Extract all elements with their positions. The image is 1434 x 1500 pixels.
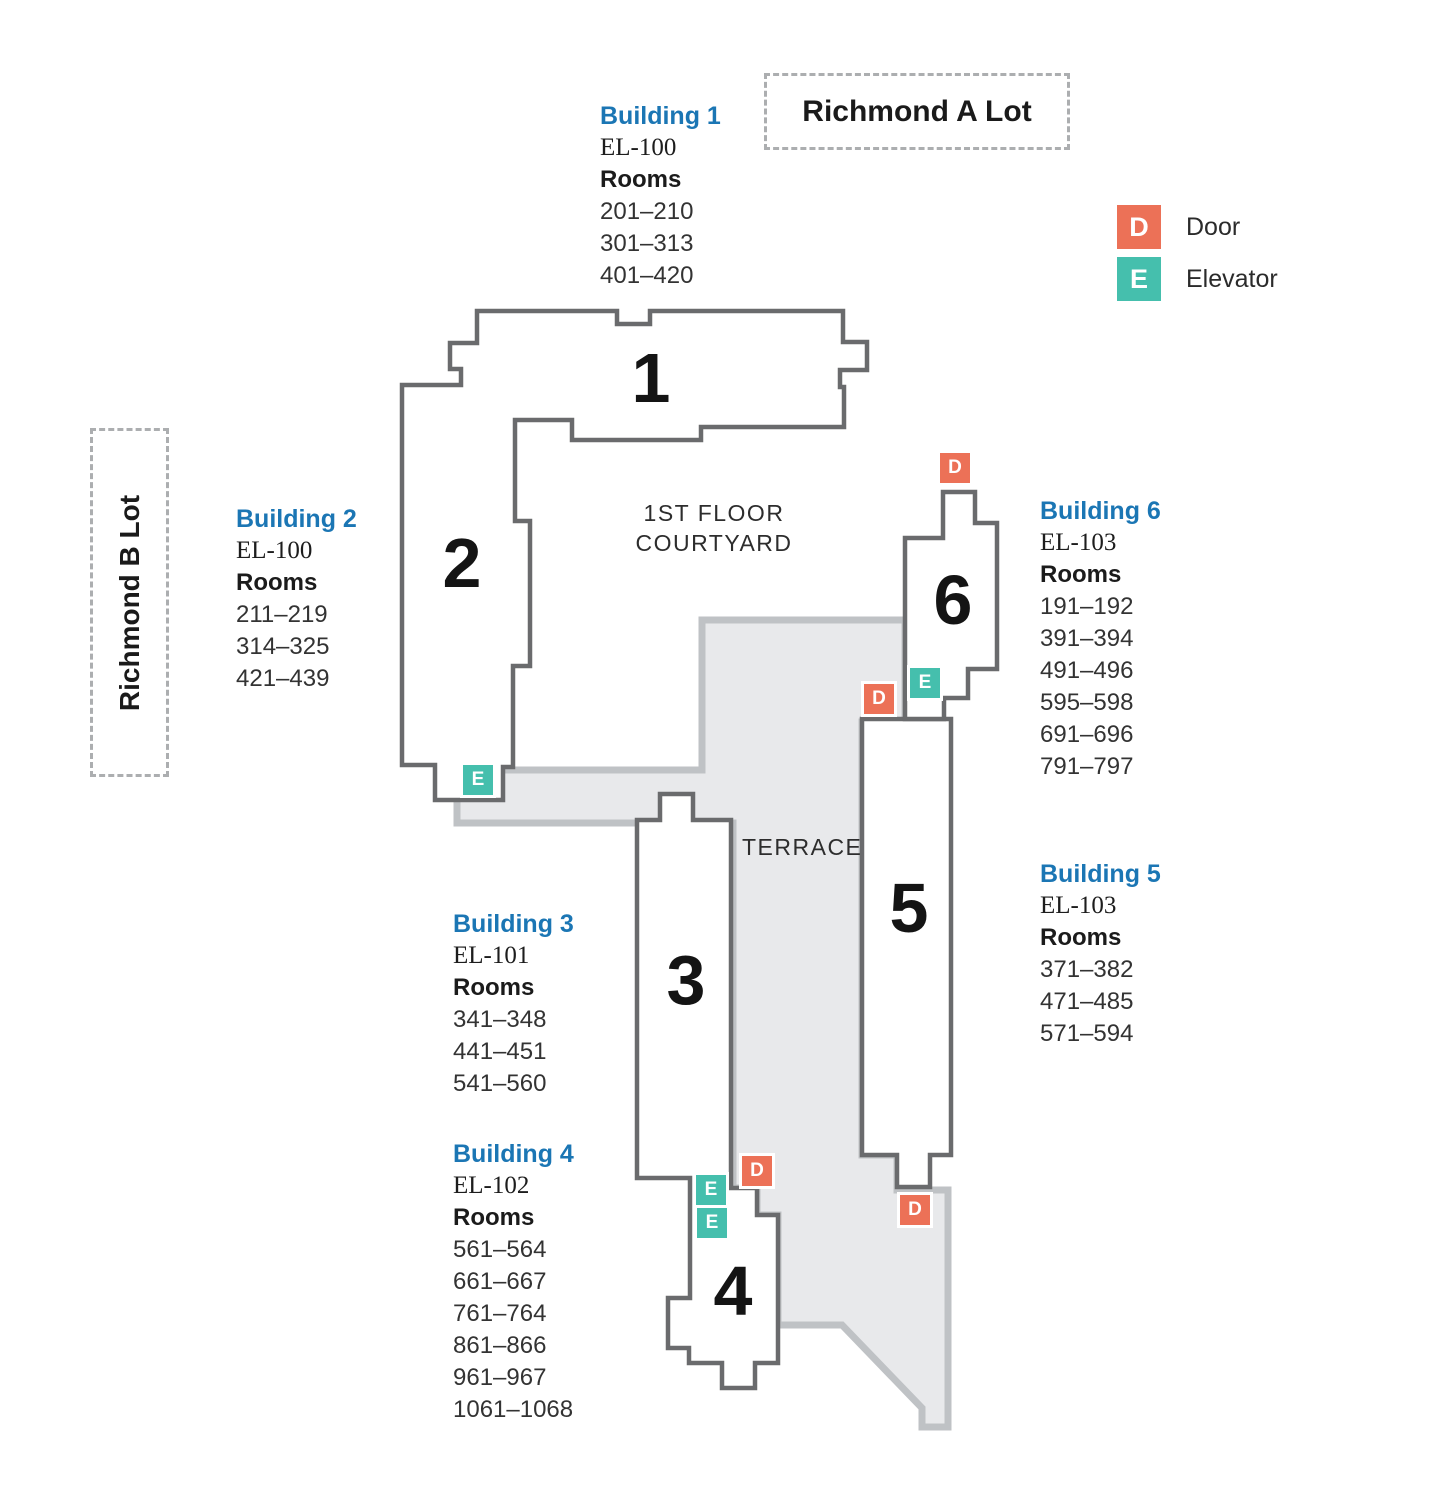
building-title: Building 4 [453,1138,574,1170]
elevator-id: EL-103 [1040,527,1161,559]
building-title: Building 2 [236,503,357,535]
elevator-marker: E [693,1172,729,1208]
elevator-id: EL-102 [453,1170,574,1202]
elevator-marker: E [907,665,943,701]
room-range: 661–667 [453,1266,574,1298]
richmond-a-lot-label: Richmond A Lot [802,95,1031,129]
door-marker: D [897,1192,933,1228]
building-5-outline [862,719,951,1187]
room-range: 371–382 [1040,954,1161,986]
building-5-number: 5 [864,873,954,943]
building-3-info: Building 3 EL-101 Rooms 341–348 441–451 … [453,908,574,1100]
floor-map-page: Richmond A Lot Richmond B Lot D Door E E… [0,0,1434,1500]
room-range: 471–485 [1040,986,1161,1018]
building-title: Building 6 [1040,495,1161,527]
legend-elevator-label: Elevator [1186,257,1278,301]
rooms-label: Rooms [453,972,574,1004]
building-1-number: 1 [606,343,696,413]
elevator-id: EL-100 [236,535,357,567]
richmond-a-lot: Richmond A Lot [764,73,1070,150]
building-1-info: Building 1 EL-100 Rooms 201–210 301–313 … [600,100,721,292]
room-range: 401–420 [600,260,721,292]
rooms-label: Rooms [600,164,721,196]
room-range: 441–451 [453,1036,574,1068]
room-range: 491–496 [1040,655,1161,687]
room-range: 561–564 [453,1234,574,1266]
richmond-b-lot-label: Richmond B Lot [114,494,146,710]
elevator-id: EL-101 [453,940,574,972]
courtyard-label-line2: COURTYARD [564,528,864,558]
room-range: 391–394 [1040,623,1161,655]
door-marker: D [739,1153,775,1189]
building-2-number: 2 [417,528,507,598]
room-range: 201–210 [600,196,721,228]
room-range: 791–797 [1040,751,1161,783]
room-range: 541–560 [453,1068,574,1100]
building-4-info: Building 4 EL-102 Rooms 561–564 661–667 … [453,1138,574,1426]
room-range: 341–348 [453,1004,574,1036]
building-5-info: Building 5 EL-103 Rooms 371–382 471–485 … [1040,858,1161,1050]
room-range: 861–866 [453,1330,574,1362]
room-range: 961–967 [453,1362,574,1394]
building-6-number: 6 [908,565,998,635]
door-marker: D [937,450,973,486]
courtyard-label: 1ST FLOOR COURTYARD [564,498,864,558]
elevator-marker: E [460,762,496,798]
room-range: 421–439 [236,663,357,695]
room-range: 301–313 [600,228,721,260]
legend-door-swatch: D [1117,205,1161,249]
rooms-label: Rooms [236,567,357,599]
building-title: Building 5 [1040,858,1161,890]
door-marker: D [861,681,897,717]
building-6-info: Building 6 EL-103 Rooms 191–192 391–394 … [1040,495,1161,783]
room-range: 211–219 [236,599,357,631]
room-range: 571–594 [1040,1018,1161,1050]
richmond-b-lot: Richmond B Lot [90,428,169,777]
room-range: 691–696 [1040,719,1161,751]
terrace-label: TERRACE [742,832,862,862]
rooms-label: Rooms [1040,559,1161,591]
room-range: 191–192 [1040,591,1161,623]
building-title: Building 3 [453,908,574,940]
room-range: 314–325 [236,631,357,663]
building-2-info: Building 2 EL-100 Rooms 211–219 314–325 … [236,503,357,695]
elevator-id: EL-103 [1040,890,1161,922]
building-3-number: 3 [641,945,731,1015]
room-range: 761–764 [453,1298,574,1330]
rooms-label: Rooms [453,1202,574,1234]
legend-elevator-swatch: E [1117,257,1161,301]
courtyard-label-line1: 1ST FLOOR [564,498,864,528]
rooms-label: Rooms [1040,922,1161,954]
legend-door-label: Door [1186,205,1240,249]
building-4-number: 4 [688,1256,778,1326]
elevator-id: EL-100 [600,132,721,164]
elevator-marker: E [694,1205,730,1241]
room-range: 1061–1068 [453,1394,574,1426]
room-range: 595–598 [1040,687,1161,719]
building-title: Building 1 [600,100,721,132]
